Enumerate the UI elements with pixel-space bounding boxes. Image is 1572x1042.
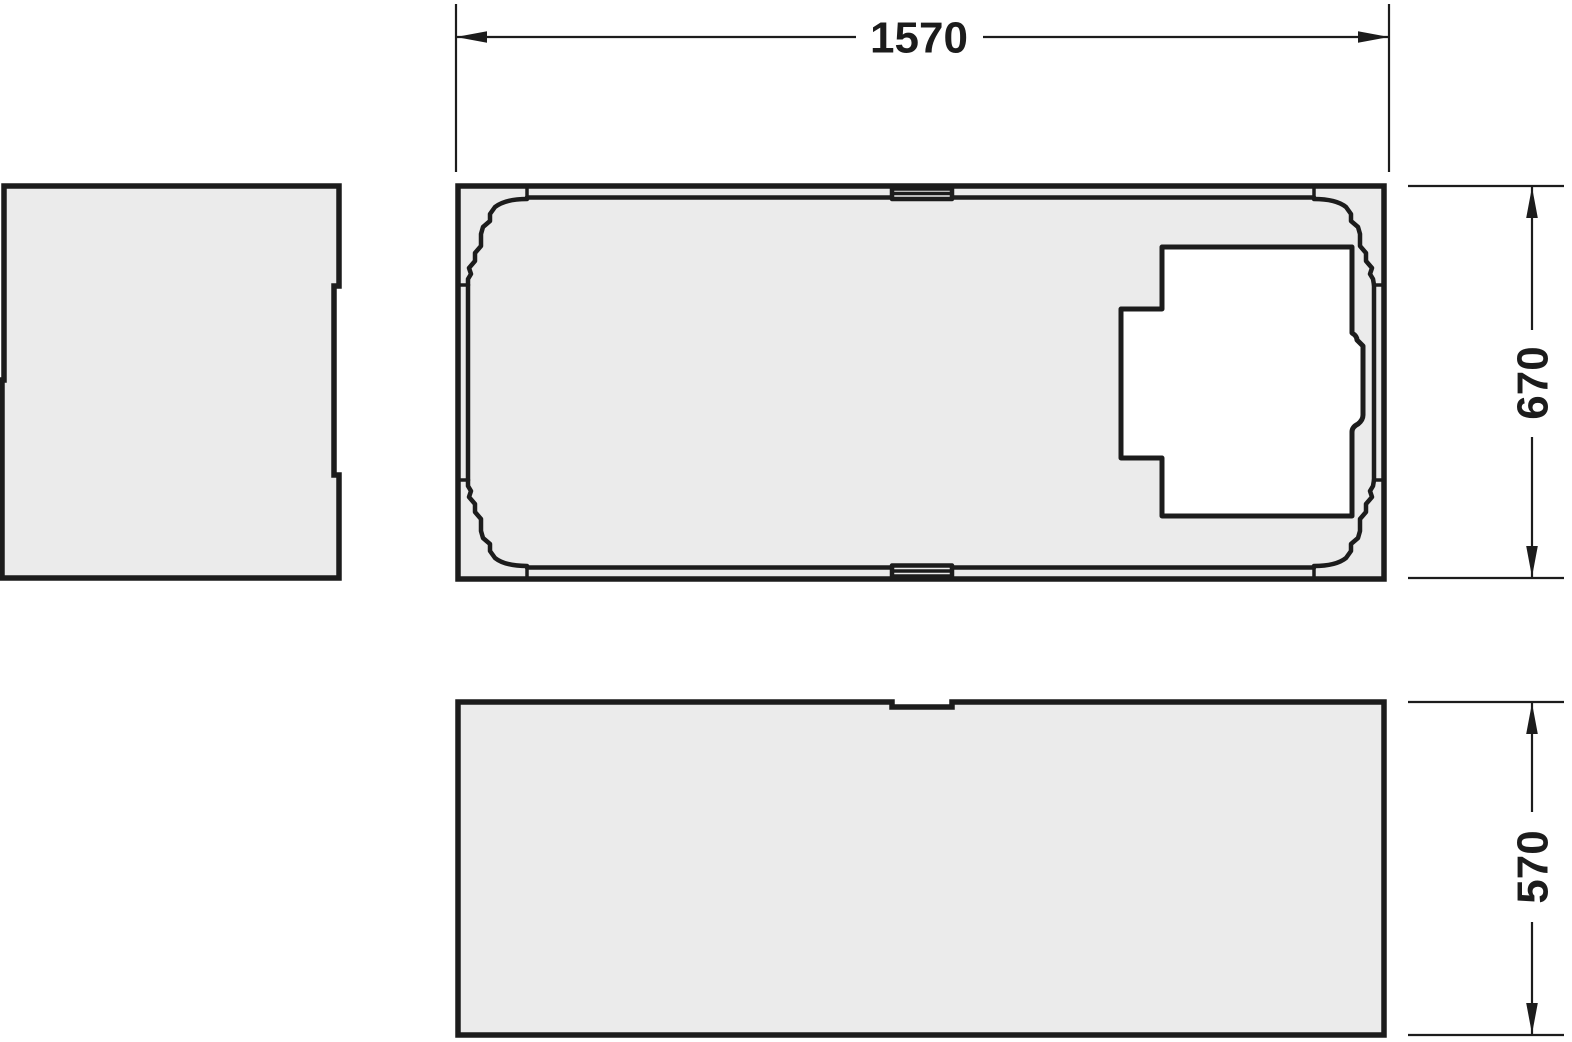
dimension-depth: 670	[1408, 186, 1564, 578]
top-view-bottom-tab	[892, 566, 952, 577]
dimension-width-arrow-left	[456, 31, 487, 43]
dimension-depth-label: 670	[1508, 346, 1557, 419]
dimension-height-label: 570	[1508, 830, 1557, 903]
top-view-top-tab	[892, 189, 952, 200]
dimension-width-arrow-right	[1358, 31, 1389, 43]
front-view-outline	[458, 702, 1384, 1035]
top-view	[458, 186, 1385, 579]
dimension-height-arrow-bottom	[1526, 1003, 1538, 1034]
dimension-width-label: 1570	[870, 13, 968, 62]
end-view	[2, 186, 339, 578]
front-view	[458, 702, 1384, 1035]
end-view-outline	[2, 186, 339, 578]
dimension-height: 570	[1408, 702, 1564, 1035]
dimension-depth-arrow-top	[1526, 187, 1538, 218]
technical-drawing-page: 1570 670 570	[0, 0, 1572, 1042]
dimension-depth-arrow-bottom	[1526, 546, 1538, 577]
technical-drawing: 1570 670 570	[0, 0, 1572, 1042]
dimension-height-arrow-top	[1526, 703, 1538, 734]
dimension-width: 1570	[456, 4, 1389, 172]
